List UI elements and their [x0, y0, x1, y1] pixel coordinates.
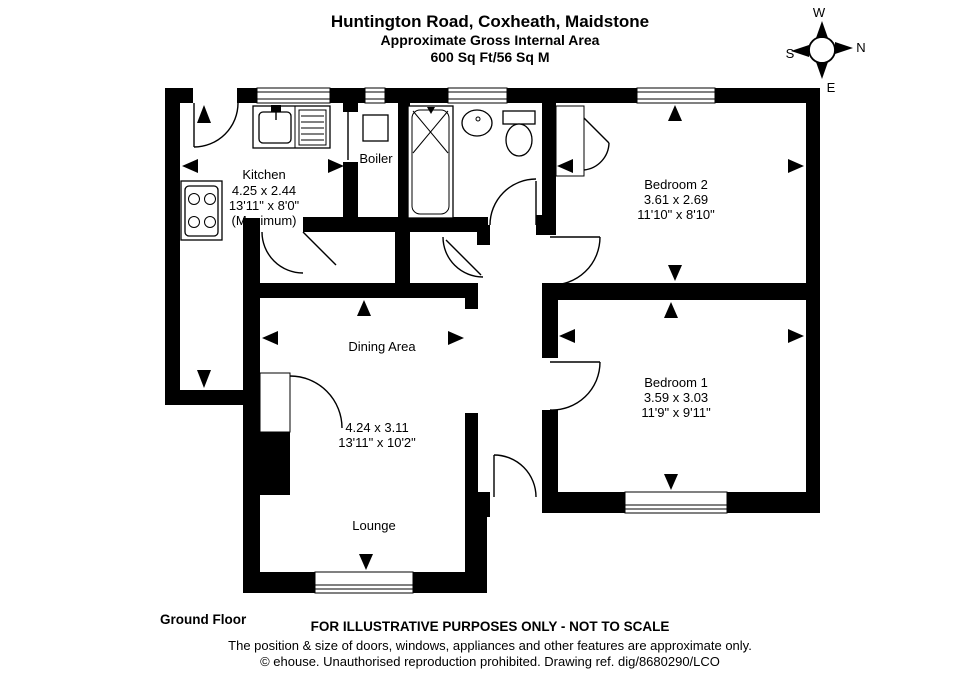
kitchen-arrow-left: [182, 159, 198, 173]
back-door: [494, 455, 536, 497]
bedroom1-imperial: 11'9" x 9'11": [641, 405, 711, 420]
kitchen-imperial: 13'11" x 8'0": [229, 198, 300, 213]
kitchen-label: Kitchen 4.25 x 2.44 13'11" x 8'0" (Maxim…: [229, 167, 300, 228]
dining-label: Dining Area: [348, 339, 416, 354]
kitchen-note: (Maximum): [232, 213, 297, 228]
bedroom1-label: Bedroom 1 3.59 x 3.03 11'9" x 9'11": [641, 375, 711, 420]
footer-disclaimer: The position & size of doors, windows, a…: [0, 638, 980, 653]
bedroom2-arrow-down: [668, 265, 682, 281]
bedroom1-arrow-down: [664, 474, 678, 490]
bedroom2-imperial: 11'10" x 8'10": [637, 207, 715, 222]
bedroom2-label: Bedroom 2 3.61 x 2.69 11'10" x 8'10": [637, 177, 715, 222]
bathroom-door: [490, 179, 536, 225]
kitchen-door: [262, 232, 336, 273]
kitchen-sink: [253, 105, 330, 148]
lounge-label: Lounge: [352, 518, 395, 533]
bedroom1-arrow-right: [788, 329, 804, 343]
bedroom2-arrow-up: [668, 105, 682, 121]
boiler-unit: [363, 115, 388, 141]
hob: [181, 181, 222, 240]
compass-point-bottom: [816, 62, 828, 79]
bath: [408, 106, 453, 218]
bedroom2-name: Bedroom 2: [644, 177, 708, 192]
bedroom1-arrow-up: [664, 302, 678, 318]
bedroom1-name: Bedroom 1: [644, 375, 708, 390]
compass-n: N: [856, 40, 865, 55]
windows: [257, 88, 727, 593]
bedroom2-window: [637, 88, 715, 103]
lounge-metric: 4.24 x 3.11: [345, 420, 408, 435]
compass-s: S: [786, 46, 795, 61]
bedroom1-door: [550, 362, 600, 410]
basin: [462, 110, 492, 136]
compass-point-top: [816, 21, 828, 38]
compass-e: E: [827, 80, 836, 95]
kitchen-arrow-up: [197, 105, 211, 123]
bedroom1-metric: 3.59 x 3.03: [644, 390, 708, 405]
bedroom2-metric: 3.61 x 2.69: [644, 192, 708, 207]
footer-notice: FOR ILLUSTRATIVE PURPOSES ONLY - NOT TO …: [0, 619, 980, 634]
lounge-imperial: 13'11" x 10'2": [338, 435, 416, 450]
dining-arrow-right: [448, 331, 464, 345]
kitchen-arrow-down: [197, 370, 211, 388]
compass-point-right: [835, 42, 853, 54]
bathroom-window: [448, 88, 507, 103]
bedroom2-arrow-right: [788, 159, 804, 173]
dining-cupboard: [260, 373, 342, 432]
compass-circle: [809, 37, 835, 63]
lounge-window: [315, 572, 413, 593]
toilet: [503, 111, 535, 156]
lounge-dimensions-label: 4.24 x 3.11 13'11" x 10'2": [338, 420, 416, 450]
footer-copyright: © ehouse. Unauthorised reproduction proh…: [0, 654, 980, 669]
bedroom2-arrow-left: [557, 159, 573, 173]
dining-arrow-left: [262, 331, 278, 345]
bedroom2-door: [550, 237, 600, 285]
bedroom1-window: [625, 492, 727, 513]
kitchen-arrow-right: [328, 159, 344, 173]
kitchen-name: Kitchen: [242, 167, 285, 182]
kitchen-metric: 4.25 x 2.44: [232, 183, 296, 198]
compass-w: W: [813, 5, 826, 20]
kitchen-window: [257, 88, 330, 103]
floor-plan: Kitchen 4.25 x 2.44 13'11" x 8'0" (Maxim…: [0, 0, 980, 692]
dining-arrow-up: [357, 300, 371, 316]
compass-rose: W N S E: [786, 5, 866, 95]
lounge-arrow-down: [359, 554, 373, 570]
bedroom1-arrow-left: [559, 329, 575, 343]
boiler-window: [365, 88, 385, 103]
boiler-label: Boiler: [359, 151, 393, 166]
floorplan-page: Huntington Road, Coxheath, Maidstone App…: [0, 0, 980, 692]
walls: [165, 88, 820, 593]
front-door: [194, 103, 238, 147]
